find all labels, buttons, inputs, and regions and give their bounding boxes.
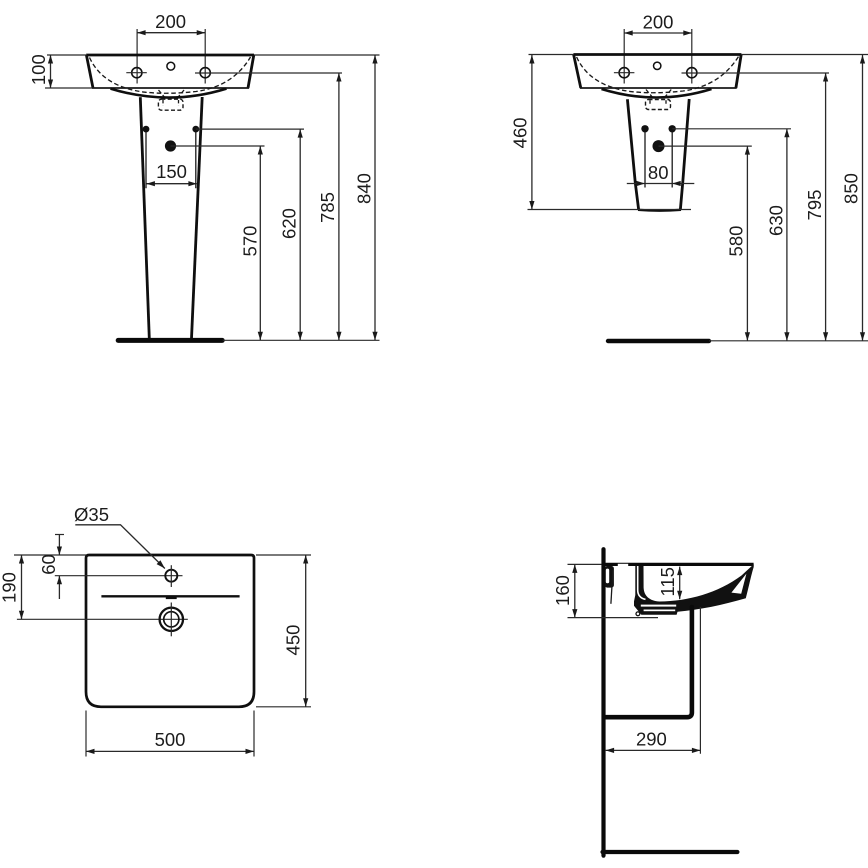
svg-text:850: 850 <box>841 173 862 204</box>
svg-text:795: 795 <box>804 190 825 221</box>
svg-text:570: 570 <box>240 226 261 257</box>
svg-text:200: 200 <box>155 11 186 32</box>
svg-text:80: 80 <box>648 162 669 183</box>
svg-text:115: 115 <box>657 567 678 597</box>
svg-text:620: 620 <box>279 208 300 239</box>
svg-text:100: 100 <box>28 54 49 85</box>
svg-text:290: 290 <box>636 729 667 750</box>
svg-text:160: 160 <box>552 575 573 606</box>
svg-text:200: 200 <box>643 11 674 32</box>
svg-text:785: 785 <box>317 192 338 223</box>
svg-text:580: 580 <box>726 226 747 257</box>
svg-text:840: 840 <box>354 173 375 204</box>
svg-text:460: 460 <box>509 117 530 148</box>
svg-text:450: 450 <box>283 625 304 656</box>
svg-text:190: 190 <box>0 572 19 603</box>
svg-text:150: 150 <box>156 161 187 182</box>
svg-text:500: 500 <box>155 729 186 750</box>
svg-text:60: 60 <box>38 554 59 575</box>
svg-text:630: 630 <box>766 205 787 236</box>
svg-text:Ø35: Ø35 <box>74 504 109 525</box>
